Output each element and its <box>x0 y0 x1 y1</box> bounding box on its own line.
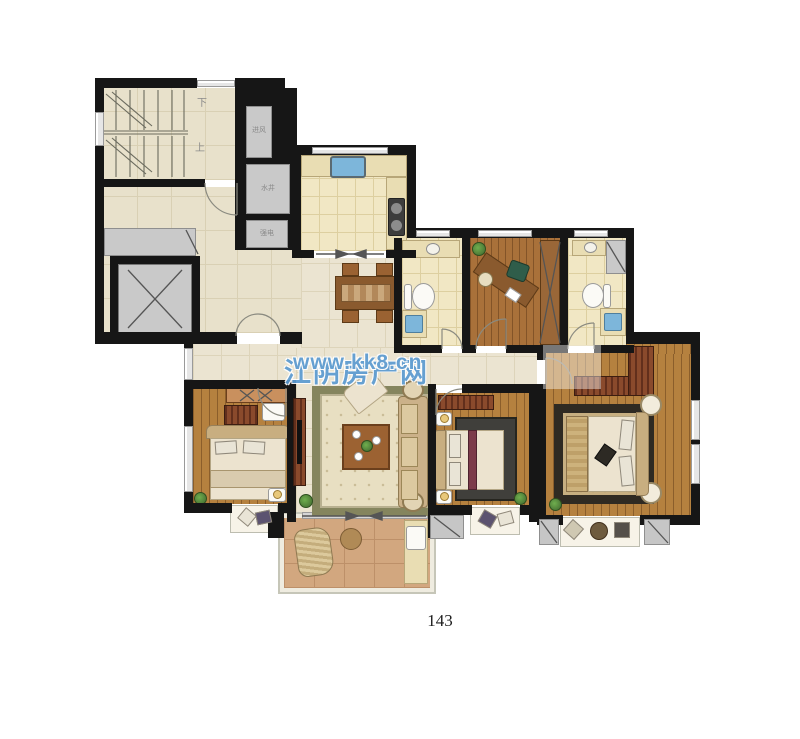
dining-chair <box>342 310 359 323</box>
master-east-window-2 <box>691 444 700 484</box>
bay-sill <box>430 515 464 539</box>
wall-bedroom2-south-b <box>520 505 538 515</box>
stairs-down-label: 下 <box>192 99 212 109</box>
master-east-window-1 <box>691 400 700 440</box>
dining-chair <box>342 263 359 276</box>
lamp <box>440 492 449 501</box>
bed2-pillow <box>449 434 461 458</box>
wall-kitchen-south-a <box>292 250 314 258</box>
bath2-basin <box>584 242 597 253</box>
plant <box>549 498 562 511</box>
plate <box>352 430 361 439</box>
floor-plan-page: 下 上 进风 水井 强电 江阴房产网www.kk8.cn 143 <box>0 0 800 739</box>
wall-master-north <box>626 332 700 344</box>
study-window <box>478 230 532 237</box>
page-number: 143 <box>390 611 490 631</box>
dining-chair <box>376 310 393 323</box>
bay-sill <box>539 519 559 545</box>
stairwell-window <box>197 80 235 87</box>
table-plant <box>361 440 373 452</box>
wall-bedroom2-north-b <box>462 384 538 393</box>
wall-bedroom1-north <box>184 380 296 389</box>
wall-stair-lobby <box>95 179 205 187</box>
master-bed-headboard <box>636 412 649 496</box>
corridor-floor <box>237 250 301 333</box>
lamp <box>273 490 282 499</box>
master-bed-throw <box>566 416 588 492</box>
air-intake-shaft-label: 进风 <box>245 127 273 134</box>
kitchen-window <box>312 147 388 154</box>
washing-machine <box>406 526 426 550</box>
bedroom2-shelf <box>438 395 494 410</box>
bath1-basin <box>426 243 440 255</box>
balcony-side-table <box>340 528 362 550</box>
plate <box>354 452 363 461</box>
bed1-pillow <box>215 440 238 455</box>
lamp <box>440 414 449 423</box>
bathroom1-window <box>416 230 450 237</box>
master-closet-vertical <box>628 346 654 396</box>
watermark-site-url: www.kk8.cn <box>293 351 422 375</box>
wall-bath1-study <box>462 238 470 345</box>
bedroom1-west-window <box>184 426 193 492</box>
wall-lobby-south-a <box>95 332 237 344</box>
stair-hall-floor <box>103 88 237 180</box>
dining-chair <box>376 263 393 276</box>
wall-dining-bath1 <box>394 238 402 345</box>
stairs-up-label: 上 <box>190 144 210 154</box>
bathroom2-window <box>574 230 608 237</box>
toilet-tank <box>404 284 412 310</box>
wall-bath2-east <box>626 238 634 342</box>
wall-bedroom2-west <box>428 384 436 522</box>
water-shaft-label: 水井 <box>246 185 290 192</box>
sofa-cushion <box>401 437 418 467</box>
shower <box>606 240 626 274</box>
wall-mid-b <box>462 345 476 353</box>
study-closet <box>540 240 560 345</box>
stove-burner <box>391 203 402 214</box>
sofa-cushion <box>401 404 418 434</box>
bay-tray <box>590 522 608 540</box>
foyer-west-window <box>184 348 193 380</box>
bath2-sink <box>604 313 622 331</box>
wall-top-shaft <box>235 78 285 88</box>
toilet-bowl <box>412 283 435 310</box>
stove-burner <box>391 220 402 231</box>
tv <box>297 420 302 464</box>
toilet-bowl <box>582 283 604 308</box>
bay-pillow <box>614 522 630 538</box>
elevator-car <box>118 264 192 334</box>
plate <box>372 436 381 445</box>
toilet-tank <box>603 284 611 308</box>
stairwell-side-window <box>95 112 104 146</box>
wall-lobby-west <box>95 186 104 336</box>
sofa-cushion <box>401 470 418 500</box>
electric-shaft-label: 强电 <box>246 230 288 237</box>
bedroom1-bench <box>224 405 258 425</box>
duct-slab <box>104 228 196 256</box>
wall-top-left <box>95 78 197 88</box>
bed1-pillow <box>243 440 266 455</box>
bed1-blanket <box>210 470 286 488</box>
wall-study-bath2 <box>560 238 568 345</box>
plant <box>299 494 313 508</box>
scan-artifact-overlay <box>543 345 601 389</box>
wall-bedroom2-master <box>529 384 546 522</box>
wall-kitchen-east <box>407 145 416 238</box>
bed2-pillow <box>449 462 461 486</box>
wall-lobby-south-b <box>280 332 302 344</box>
bath1-sink <box>405 315 423 333</box>
table-runner <box>341 284 391 302</box>
plant <box>514 492 527 505</box>
bed2-runner <box>468 430 477 490</box>
kitchen-sink <box>330 156 366 178</box>
wall-bedroom1-south-a <box>184 503 232 513</box>
bay-sill <box>644 519 670 545</box>
bedroom1-cabinet <box>262 403 285 421</box>
bed1-headboard <box>206 425 290 439</box>
wall-kitchen-west <box>292 145 301 258</box>
